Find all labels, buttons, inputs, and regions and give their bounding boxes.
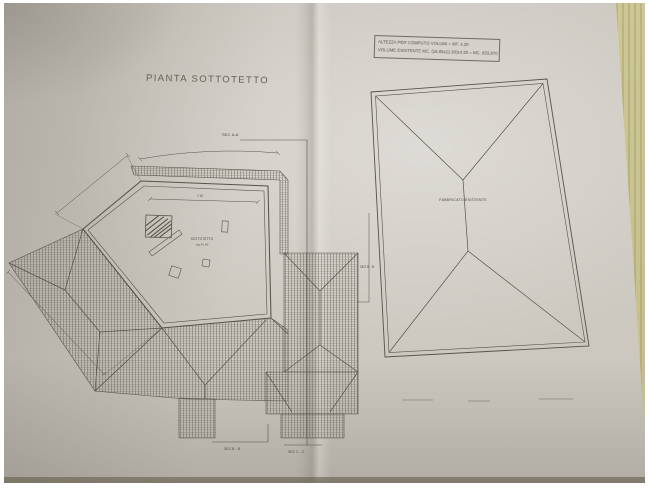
- roof-outline-outer: [371, 79, 589, 357]
- floor-plan-drawing: SEZ. A-A 7.10 SOTTOTETTO mq 41.40 SEZ B …: [0, 0, 648, 492]
- roof-outline-inner: [376, 84, 586, 353]
- attic-plan: SEZ. A-A 7.10 SOTTOTETTO mq 41.40 SEZ B …: [6, 132, 369, 454]
- section-b-label: SEZ B - B: [224, 447, 241, 451]
- building-label: FABBRICATO ESISTENTE: [439, 198, 487, 202]
- stairs-icon: [145, 215, 172, 238]
- roof-hip-lines: [376, 84, 586, 353]
- hatch-bottom-tab-right: [281, 414, 344, 438]
- hatch-bottom-tab-left: [179, 398, 215, 438]
- hatch-right-block: [284, 253, 358, 372]
- dim-top-label: 7.10: [197, 194, 203, 198]
- roof-hatch-areas: [9, 166, 358, 438]
- interior-rect-3: [222, 221, 229, 232]
- room-area-label: mq 41.40: [196, 243, 209, 247]
- room-label: SOTTOTETTO: [191, 237, 214, 241]
- interior-square-1: [169, 266, 182, 279]
- existing-building-roof-plan: FABBRICATO ESISTENTE SEZ B - B: [360, 79, 589, 401]
- section-a-label: SEZ. A-A: [222, 132, 239, 137]
- interior-square-2: [202, 259, 210, 267]
- dimension-dashes: [402, 399, 573, 401]
- section-b-right-label: SEZ B - B: [360, 265, 374, 269]
- section-c-label: SEZ C - C: [288, 450, 305, 454]
- photo-of-floor-plan: { "photo": { "paper_color": "#ccc8c0", "…: [0, 0, 648, 492]
